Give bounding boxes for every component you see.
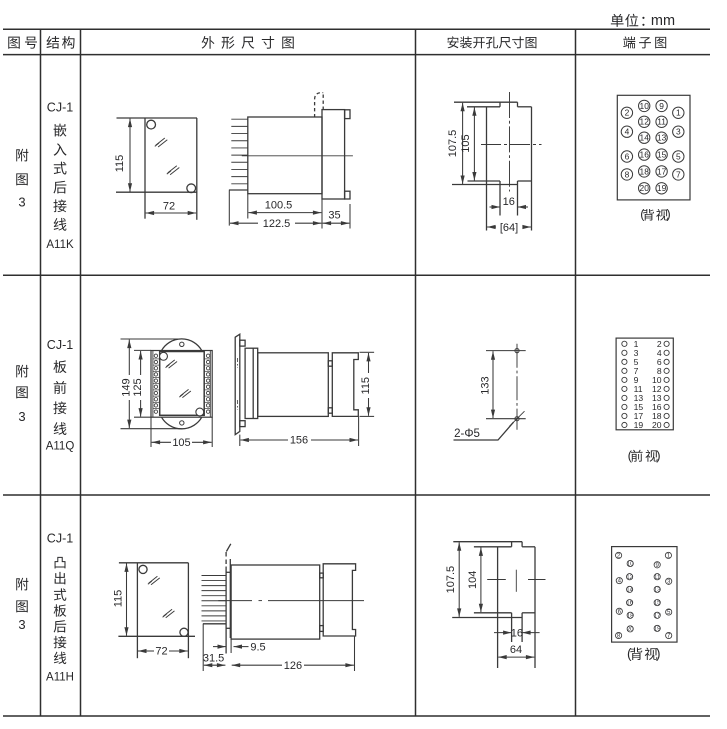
svg-text:): ) — [656, 448, 660, 463]
svg-text:CJ-1: CJ-1 — [47, 101, 73, 115]
svg-text:CJ-1: CJ-1 — [47, 532, 73, 546]
svg-text:1: 1 — [676, 108, 681, 118]
svg-text:3: 3 — [676, 127, 681, 137]
svg-text:(: ( — [627, 646, 632, 661]
svg-text:5: 5 — [676, 151, 681, 161]
svg-text:3: 3 — [18, 195, 25, 210]
svg-text:14: 14 — [640, 133, 650, 143]
svg-text:CJ-1: CJ-1 — [47, 338, 73, 352]
svg-text:15: 15 — [654, 600, 661, 607]
svg-text:105: 105 — [460, 134, 472, 152]
svg-text:19: 19 — [657, 183, 667, 193]
svg-text:100.5: 100.5 — [265, 200, 293, 212]
svg-text:122.5: 122.5 — [263, 218, 291, 230]
svg-text:13: 13 — [654, 587, 661, 594]
svg-text:A11H: A11H — [46, 672, 74, 684]
svg-text:31.5: 31.5 — [203, 652, 224, 664]
svg-text:3: 3 — [18, 409, 25, 424]
svg-text:35: 35 — [328, 209, 340, 221]
svg-text:12: 12 — [640, 117, 650, 127]
svg-text:20: 20 — [627, 626, 634, 633]
svg-text:9: 9 — [656, 562, 660, 569]
svg-text:10: 10 — [627, 561, 634, 568]
svg-text:mm: mm — [651, 13, 675, 29]
svg-text:11: 11 — [657, 117, 666, 127]
svg-text:107.5: 107.5 — [445, 566, 457, 594]
svg-text:107.5: 107.5 — [447, 130, 459, 158]
svg-text:115: 115 — [360, 377, 372, 395]
svg-text:17: 17 — [654, 612, 661, 619]
svg-text:3: 3 — [667, 578, 671, 585]
svg-text:133: 133 — [479, 376, 491, 394]
svg-text:115: 115 — [114, 155, 126, 173]
svg-text:64: 64 — [510, 644, 522, 656]
svg-text:[64]: [64] — [500, 222, 518, 234]
svg-text:16: 16 — [626, 600, 633, 607]
svg-text:A11K: A11K — [46, 239, 74, 251]
svg-text:6: 6 — [625, 151, 630, 161]
svg-text:10: 10 — [640, 101, 650, 111]
svg-text:149: 149 — [121, 378, 133, 396]
svg-text:20: 20 — [652, 420, 662, 430]
svg-text:126: 126 — [284, 660, 302, 672]
svg-text:72: 72 — [155, 646, 167, 658]
svg-text:): ) — [667, 208, 671, 222]
svg-text:156: 156 — [290, 435, 308, 447]
svg-text:125: 125 — [132, 378, 144, 396]
svg-text:16: 16 — [640, 149, 650, 159]
svg-text:9.5: 9.5 — [250, 642, 265, 654]
svg-text:9: 9 — [659, 101, 664, 111]
svg-text:(: ( — [640, 208, 645, 222]
svg-text:18: 18 — [640, 166, 650, 176]
svg-text:4: 4 — [625, 127, 630, 137]
svg-text:17: 17 — [657, 166, 667, 176]
svg-text:19: 19 — [654, 626, 661, 633]
svg-text:5: 5 — [667, 609, 671, 616]
svg-text:12: 12 — [626, 574, 633, 581]
svg-text:104: 104 — [467, 571, 479, 589]
svg-text:3: 3 — [18, 617, 25, 632]
svg-text:115: 115 — [112, 590, 124, 608]
svg-text:16: 16 — [503, 196, 515, 208]
svg-text:8: 8 — [625, 169, 630, 179]
svg-text:11: 11 — [654, 574, 661, 581]
svg-text:2-Φ5: 2-Φ5 — [454, 428, 480, 440]
svg-text:7: 7 — [667, 633, 671, 640]
svg-text:19: 19 — [634, 420, 644, 430]
svg-text:15: 15 — [657, 149, 667, 159]
svg-text:1: 1 — [667, 553, 671, 560]
svg-text:20: 20 — [640, 183, 650, 193]
svg-text:14: 14 — [626, 587, 633, 594]
svg-text:105: 105 — [172, 437, 190, 449]
svg-text:13: 13 — [657, 133, 667, 143]
svg-text:): ) — [656, 646, 661, 661]
svg-text:2: 2 — [625, 108, 630, 118]
svg-text:7: 7 — [676, 169, 681, 179]
svg-text:A11Q: A11Q — [46, 441, 75, 453]
svg-text:18: 18 — [627, 612, 634, 619]
svg-text:16: 16 — [511, 627, 523, 639]
svg-text:72: 72 — [163, 201, 175, 213]
